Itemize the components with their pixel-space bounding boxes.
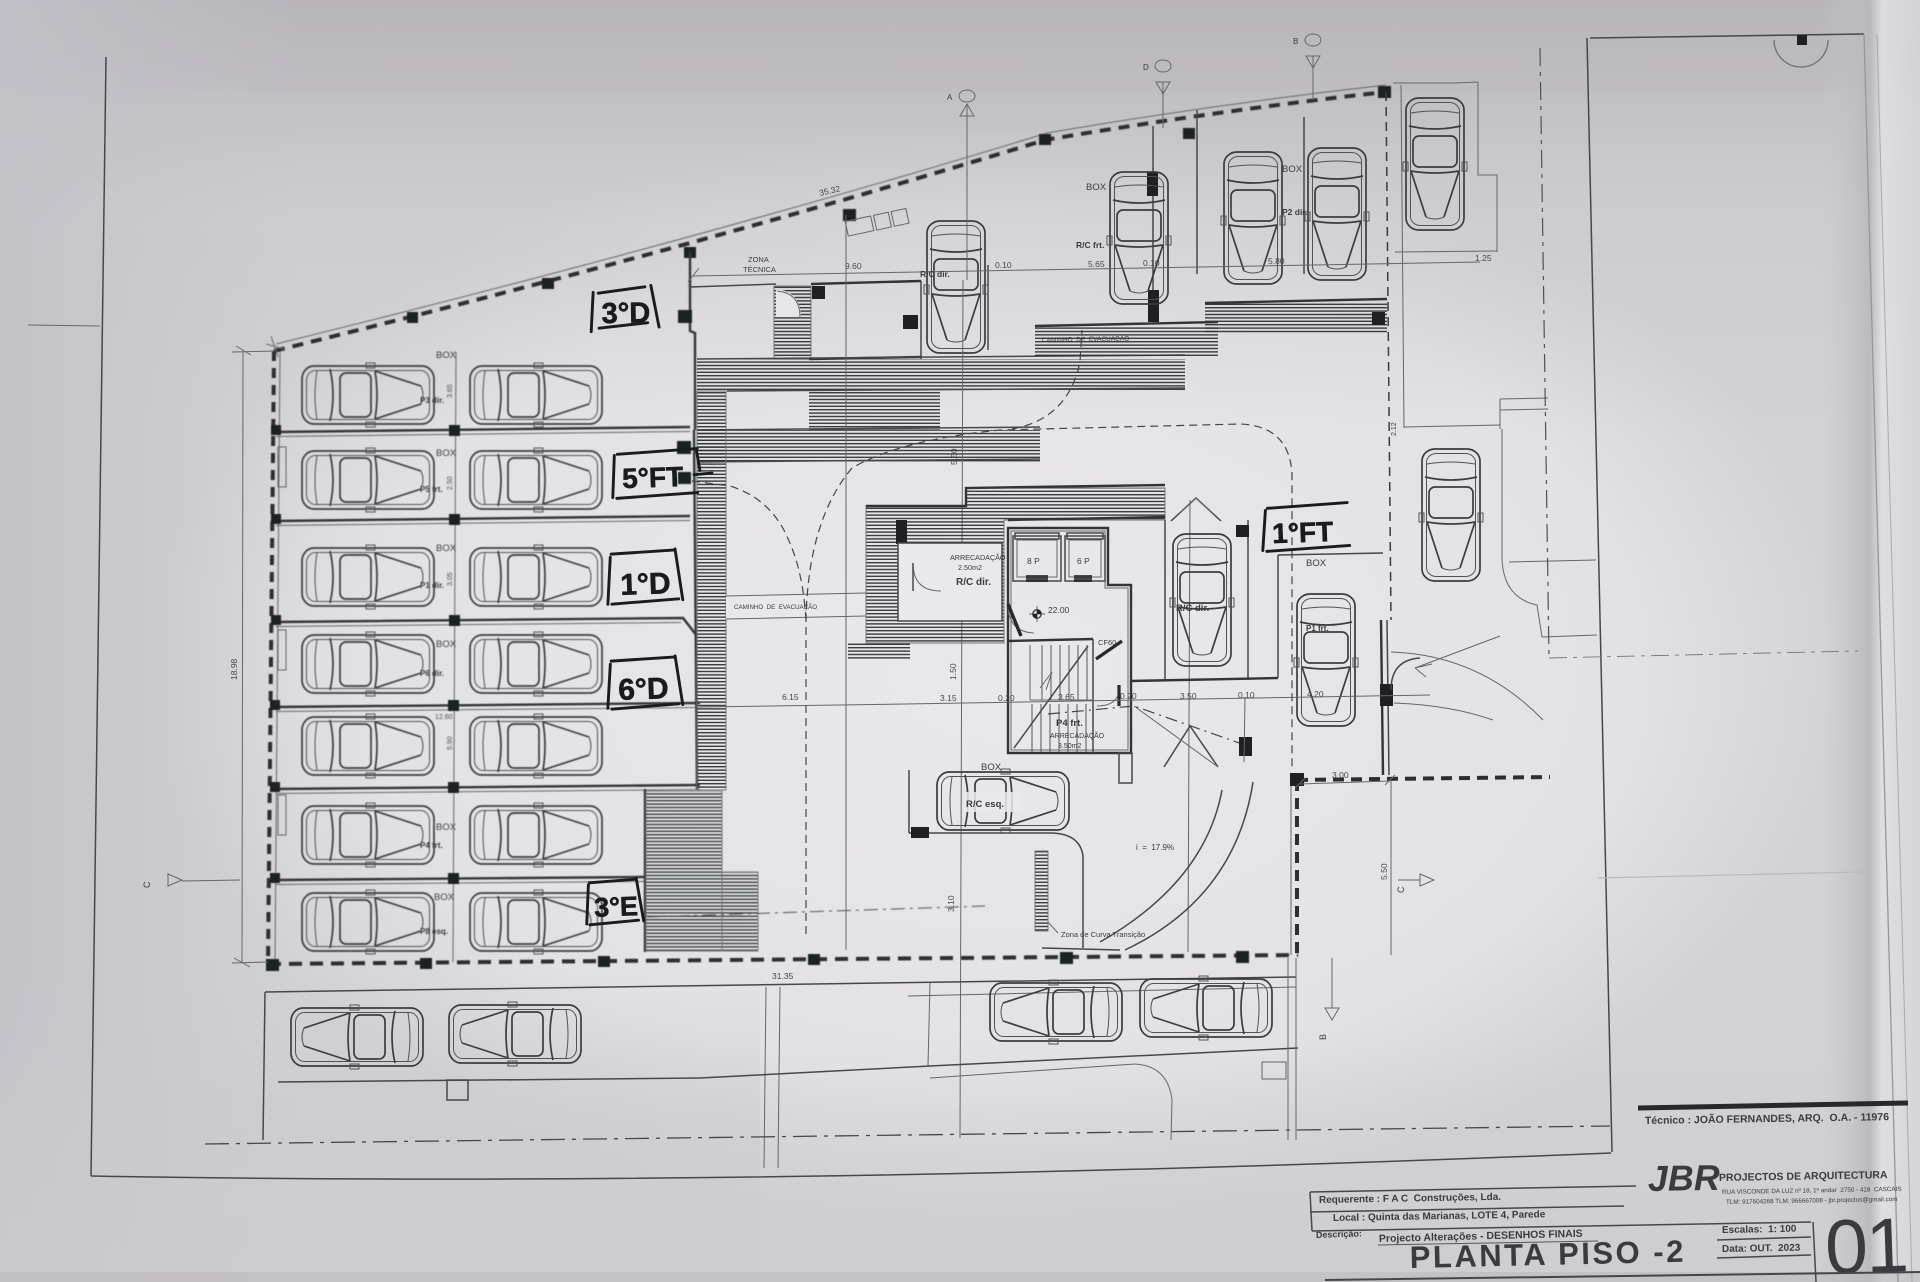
svg-text:BOX: BOX <box>436 350 457 361</box>
svg-text:B: B <box>1293 37 1298 46</box>
svg-text:D: D <box>1143 63 1149 72</box>
svg-text:B: B <box>1318 1034 1328 1040</box>
svg-text:5.50: 5.50 <box>949 448 959 465</box>
svg-text:2.12: 2.12 <box>1391 422 1398 436</box>
svg-text:4.20: 4.20 <box>1307 689 1324 699</box>
svg-text:ZONA: ZONA <box>748 255 769 264</box>
svg-text:P2 dir.: P2 dir. <box>1282 207 1308 217</box>
svg-text:0.10: 0.10 <box>1143 258 1160 268</box>
svg-text:0.10: 0.10 <box>1238 690 1255 700</box>
svg-text:Descrição:: Descrição: <box>1316 1228 1362 1240</box>
svg-text:0.10: 0.10 <box>995 260 1012 270</box>
svg-text:3.15: 3.15 <box>940 693 957 703</box>
svg-text:Escalas: 1: 100: Escalas: 1: 100 <box>1722 1224 1797 1236</box>
svg-text:1°FT: 1°FT <box>1272 516 1334 549</box>
svg-text:9.60: 9.60 <box>845 261 862 271</box>
svg-text:31.35: 31.35 <box>772 971 794 981</box>
svg-text:BOX: BOX <box>436 639 457 650</box>
svg-text:P1 frt.: P1 frt. <box>1306 624 1329 633</box>
svg-text:01: 01 <box>1824 1202 1909 1282</box>
svg-text:3°E: 3°E <box>594 891 639 923</box>
svg-text:ARRECADAÇÃO: ARRECADAÇÃO <box>1050 731 1105 740</box>
svg-text:BOX: BOX <box>1086 182 1107 193</box>
svg-text:BOX: BOX <box>436 448 457 459</box>
svg-text:6°D: 6°D <box>618 672 669 707</box>
svg-text:P6 dir.: P6 dir. <box>420 669 444 678</box>
svg-text:A: A <box>947 93 953 102</box>
svg-text:R/C dir.: R/C dir. <box>1176 603 1209 614</box>
svg-text:1.50: 1.50 <box>948 663 958 680</box>
svg-text:P5 frt.: P5 frt. <box>420 485 443 494</box>
svg-text:3.65: 3.65 <box>447 384 454 398</box>
svg-text:18.98: 18.98 <box>229 658 239 680</box>
svg-text:1.25: 1.25 <box>1475 253 1492 263</box>
svg-text:3.50m2: 3.50m2 <box>1058 743 1081 750</box>
svg-text:3.65: 3.65 <box>1058 692 1075 702</box>
svg-text:BOX: BOX <box>436 543 457 554</box>
svg-text:1°D: 1°D <box>620 567 671 602</box>
svg-text:ARRECADAÇÃO: ARRECADAÇÃO <box>950 553 1006 562</box>
svg-text:i = 17.9%: i = 17.9% <box>1136 843 1174 852</box>
svg-text:3.50: 3.50 <box>1180 691 1197 701</box>
svg-text:Data: OUT. 2023: Data: OUT. 2023 <box>1722 1243 1801 1255</box>
svg-text:5°FT: 5°FT <box>622 461 684 494</box>
svg-text:C: C <box>142 881 152 888</box>
svg-text:BOX: BOX <box>436 822 457 833</box>
svg-text:8 P: 8 P <box>1027 556 1040 566</box>
svg-text:5.50: 5.50 <box>1379 863 1389 880</box>
svg-text:BOX: BOX <box>1282 164 1303 175</box>
svg-text:P1 dir.: P1 dir. <box>420 581 444 590</box>
svg-text:R/C dir.: R/C dir. <box>956 577 991 588</box>
svg-text:PLANTA PISO -2: PLANTA PISO -2 <box>1409 1234 1686 1275</box>
svg-text:3.05: 3.05 <box>447 572 454 586</box>
svg-text:5.80: 5.80 <box>1268 256 1285 266</box>
svg-text:0.20: 0.20 <box>1120 691 1137 701</box>
svg-text:2.50: 2.50 <box>447 476 454 490</box>
svg-text:3°D: 3°D <box>601 297 650 330</box>
svg-text:BOX: BOX <box>434 892 455 903</box>
svg-text:22.00: 22.00 <box>1048 605 1070 615</box>
svg-text:R/C frt.: R/C frt. <box>1076 240 1104 250</box>
svg-text:P3 dir.: P3 dir. <box>420 396 444 405</box>
svg-text:BOX: BOX <box>1306 558 1327 569</box>
svg-text:R/C esq.: R/C esq. <box>966 799 1004 810</box>
svg-text:6.15: 6.15 <box>782 692 799 702</box>
svg-text:Zona de Curva Transição: Zona de Curva Transição <box>1061 930 1145 939</box>
svg-text:6 P: 6 P <box>1077 556 1090 566</box>
svg-text:5.65: 5.65 <box>1088 259 1105 269</box>
svg-text:0.20: 0.20 <box>998 693 1015 703</box>
svg-text:TÉCNICA: TÉCNICA <box>743 265 776 274</box>
svg-text:C: C <box>1396 886 1406 893</box>
svg-text:5.90: 5.90 <box>447 736 454 750</box>
svg-text:3.10: 3.10 <box>946 895 956 912</box>
svg-text:JBR: JBR <box>1647 1157 1720 1199</box>
svg-text:2.50m2: 2.50m2 <box>958 563 982 572</box>
svg-text:P4 frt.: P4 frt. <box>420 841 443 850</box>
svg-text:3.00: 3.00 <box>1332 770 1349 780</box>
svg-text:12.60: 12.60 <box>435 714 453 721</box>
svg-text:P4 frt.: P4 frt. <box>1056 718 1083 729</box>
svg-text:R/C dir.: R/C dir. <box>920 269 950 279</box>
